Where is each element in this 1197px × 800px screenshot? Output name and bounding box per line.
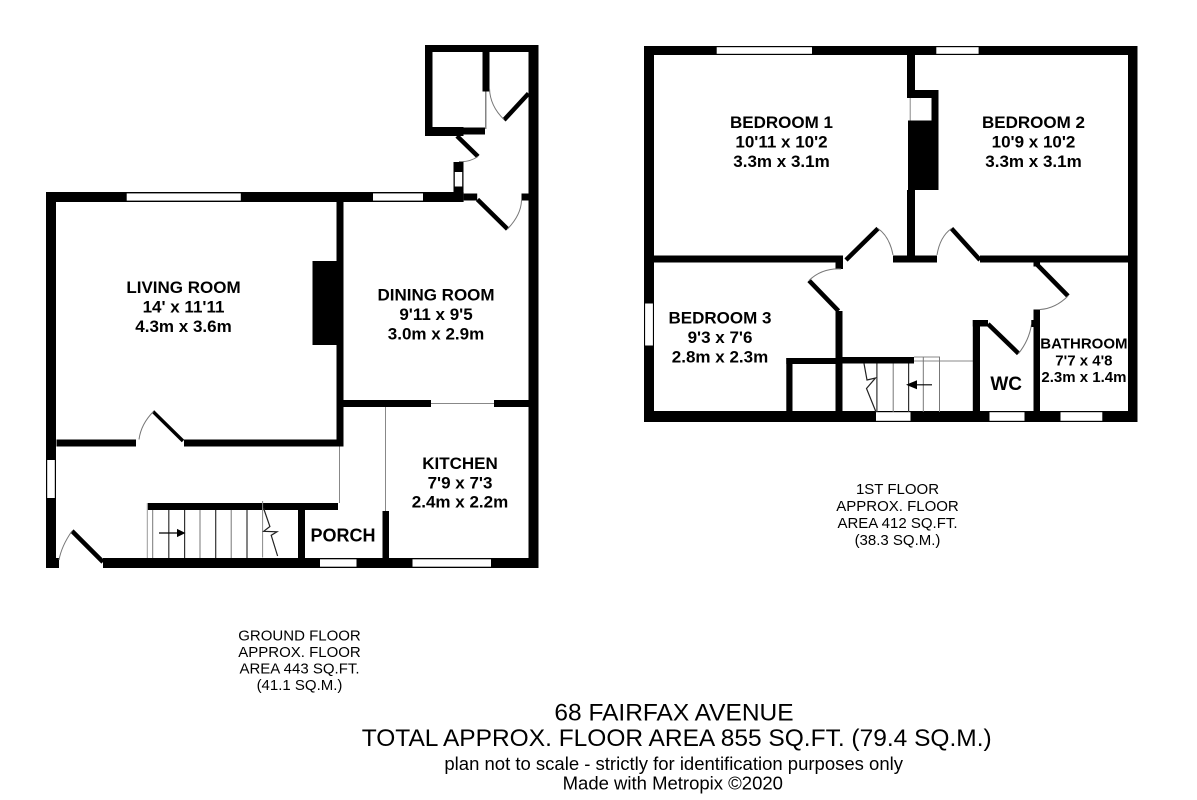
svg-text:(41.1 SQ.M.): (41.1 SQ.M.) bbox=[257, 677, 343, 694]
svg-text:WC: WC bbox=[990, 374, 1022, 395]
svg-text:BEDROOM 3: BEDROOM 3 bbox=[669, 309, 772, 328]
svg-text:AREA 412 SQ.FT.: AREA 412 SQ.FT. bbox=[837, 515, 957, 532]
svg-text:(38.3 SQ.M.): (38.3 SQ.M.) bbox=[855, 532, 941, 549]
svg-text:DINING ROOM: DINING ROOM bbox=[377, 286, 494, 305]
svg-text:APPROX. FLOOR: APPROX. FLOOR bbox=[836, 498, 959, 515]
svg-text:2.3m x 1.4m: 2.3m x 1.4m bbox=[1041, 369, 1126, 386]
svg-text:Made with Metropix ©2020: Made with Metropix ©2020 bbox=[563, 773, 783, 794]
svg-text:TOTAL APPROX. FLOOR AREA 855 S: TOTAL APPROX. FLOOR AREA 855 SQ.FT. (79.… bbox=[362, 725, 992, 752]
svg-text:APPROX. FLOOR: APPROX. FLOOR bbox=[238, 644, 361, 661]
svg-text:AREA 443 SQ.FT.: AREA 443 SQ.FT. bbox=[239, 661, 359, 678]
svg-text:3.3m x 3.1m: 3.3m x 3.1m bbox=[985, 152, 1081, 171]
svg-text:10'11 x 10'2: 10'11 x 10'2 bbox=[735, 133, 827, 152]
svg-text:9'11 x 9'5: 9'11 x 9'5 bbox=[399, 305, 472, 324]
svg-text:3.3m x 3.1m: 3.3m x 3.1m bbox=[733, 152, 829, 171]
svg-text:BATHROOM: BATHROOM bbox=[1040, 335, 1127, 352]
svg-text:2.4m x 2.2m: 2.4m x 2.2m bbox=[412, 493, 508, 512]
svg-text:1ST FLOOR: 1ST FLOOR bbox=[856, 481, 939, 498]
svg-text:KITCHEN: KITCHEN bbox=[422, 454, 498, 473]
svg-text:10'9 x 10'2: 10'9 x 10'2 bbox=[992, 133, 1076, 152]
svg-text:7'9 x 7'3: 7'9 x 7'3 bbox=[428, 474, 493, 493]
svg-text:BEDROOM 1: BEDROOM 1 bbox=[730, 113, 833, 132]
svg-text:BEDROOM 2: BEDROOM 2 bbox=[982, 113, 1085, 132]
svg-text:9'3 x 7'6: 9'3 x 7'6 bbox=[688, 328, 753, 347]
svg-text:LIVING ROOM: LIVING ROOM bbox=[126, 278, 240, 297]
svg-text:68 FAIRFAX AVENUE: 68 FAIRFAX AVENUE bbox=[554, 700, 793, 727]
svg-text:4.3m x 3.6m: 4.3m x 3.6m bbox=[135, 317, 231, 336]
svg-text:GROUND FLOOR: GROUND FLOOR bbox=[238, 627, 361, 644]
svg-text:3.0m x 2.9m: 3.0m x 2.9m bbox=[388, 325, 484, 344]
svg-text:plan not to scale - strictly f: plan not to scale - strictly for identif… bbox=[444, 753, 903, 774]
svg-text:7'7 x 4'8: 7'7 x 4'8 bbox=[1055, 352, 1112, 369]
svg-text:PORCH: PORCH bbox=[310, 526, 375, 546]
svg-text:14' x 11'11: 14' x 11'11 bbox=[143, 298, 225, 317]
svg-text:2.8m x 2.3m: 2.8m x 2.3m bbox=[672, 348, 768, 367]
